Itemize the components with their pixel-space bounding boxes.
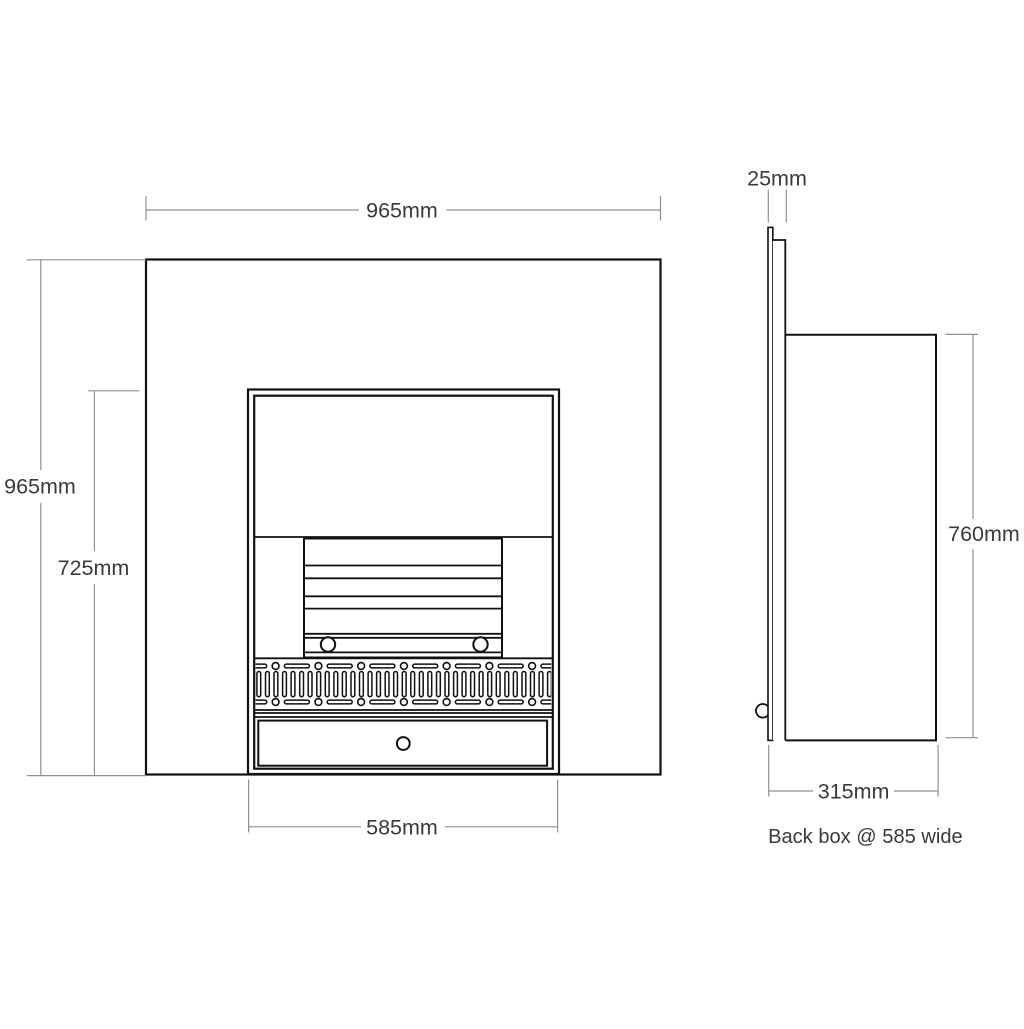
svg-text:760mm: 760mm <box>948 522 1020 546</box>
svg-text:965mm: 965mm <box>366 199 438 223</box>
svg-text:Back box @ 585 wide: Back box @ 585 wide <box>768 826 963 848</box>
svg-text:25mm: 25mm <box>747 167 807 191</box>
svg-text:725mm: 725mm <box>58 556 130 580</box>
svg-text:965mm: 965mm <box>4 475 76 499</box>
svg-text:585mm: 585mm <box>366 815 438 839</box>
svg-text:315mm: 315mm <box>818 780 890 804</box>
